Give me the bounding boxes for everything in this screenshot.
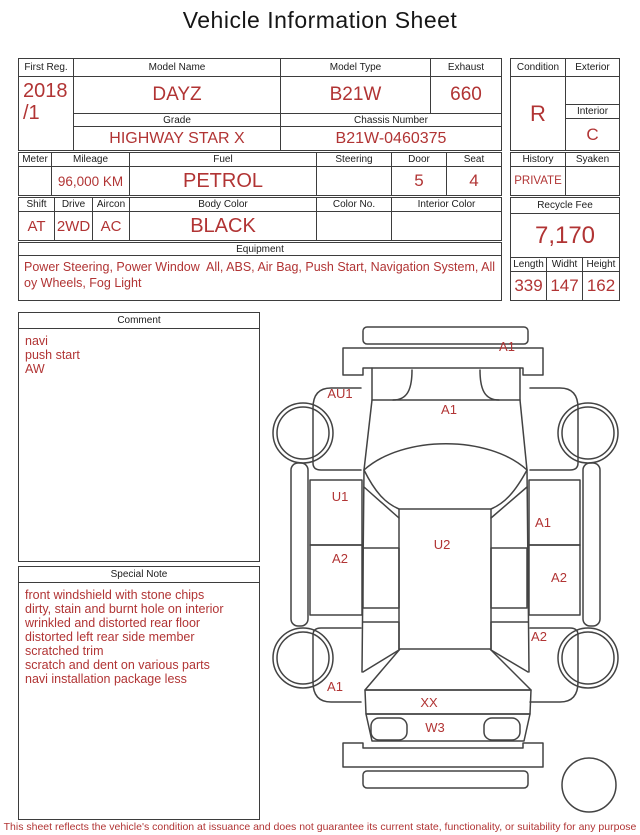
recycle-fee-value: 7,170 bbox=[510, 213, 620, 258]
exterior-label: Exterior bbox=[565, 58, 620, 77]
damage-code-label: XX bbox=[420, 695, 438, 710]
front-door-right bbox=[529, 480, 580, 545]
color-no-value bbox=[316, 211, 392, 241]
condition-label: Condition bbox=[510, 58, 566, 77]
damage-code-label: A1 bbox=[441, 402, 457, 417]
special-note-line: distorted left rear side member bbox=[25, 631, 247, 644]
meter-value bbox=[18, 166, 52, 196]
vehicle-information-sheet: Vehicle Information Sheet First Reg. Mod… bbox=[0, 0, 640, 835]
disclaimer-text: This sheet reflects the vehicle's condit… bbox=[0, 821, 640, 833]
widht-value: 147 bbox=[546, 271, 583, 301]
aircon-value: AC bbox=[92, 211, 130, 241]
cowl-arc-left bbox=[393, 370, 412, 400]
sill-right bbox=[583, 463, 600, 626]
special-note-lines: front windshield with stone chips dirty,… bbox=[25, 589, 247, 687]
fuel-label: Fuel bbox=[129, 152, 317, 167]
special-note-line: wrinkled and distorted rear floor bbox=[25, 617, 247, 630]
tail-light-right bbox=[484, 718, 520, 740]
steering-label: Steering bbox=[316, 152, 392, 167]
damage-code-label: A2 bbox=[531, 629, 547, 644]
rear-wheel-left bbox=[273, 628, 333, 688]
first-reg-value: 2018 /1 bbox=[18, 76, 74, 151]
damage-code-label: W3 bbox=[425, 720, 445, 735]
special-note-line: front windshield with stone chips bbox=[25, 589, 247, 602]
mileage-label: Mileage bbox=[51, 152, 130, 167]
grade-value: HIGHWAY STAR X bbox=[73, 126, 281, 151]
model-type-value: B21W bbox=[280, 76, 431, 114]
special-note-line: dirty, stain and burnt hole on interior bbox=[25, 603, 247, 616]
sill-left bbox=[291, 463, 308, 626]
first-reg-label: First Reg. bbox=[18, 58, 74, 77]
height-label: Height bbox=[582, 257, 620, 272]
spare-wheel bbox=[562, 758, 616, 812]
damage-code-label: A1 bbox=[499, 339, 515, 354]
syaken-value bbox=[565, 166, 620, 196]
interior-value: C bbox=[565, 118, 620, 151]
page-title: Vehicle Information Sheet bbox=[0, 7, 640, 34]
hood-outline bbox=[372, 368, 520, 400]
front-wheel-right-inner bbox=[562, 407, 614, 459]
seat-value: 4 bbox=[446, 166, 502, 196]
shift-label: Shift bbox=[18, 197, 55, 212]
seat-label: Seat bbox=[446, 152, 502, 167]
door-value: 5 bbox=[391, 166, 447, 196]
interior-label: Interior bbox=[565, 104, 620, 119]
comment-label: Comment bbox=[18, 312, 260, 329]
front-wheel-left bbox=[273, 403, 333, 463]
damage-code-label: AU1 bbox=[327, 386, 352, 401]
damage-code-label: A1 bbox=[327, 679, 343, 694]
shift-value: AT bbox=[18, 211, 55, 241]
special-note-line: scratch and dent on various parts bbox=[25, 659, 247, 672]
equipment-value: Power Steering, Power Window All, ABS, A… bbox=[18, 255, 502, 301]
rear-bumper-bottom-strip bbox=[363, 771, 528, 788]
length-value: 339 bbox=[510, 271, 547, 301]
rear-wheel-right bbox=[558, 628, 618, 688]
drive-value: 2WD bbox=[54, 211, 93, 241]
comment-lines: navi push start AW bbox=[25, 335, 249, 377]
recycle-fee-label: Recycle Fee bbox=[510, 197, 620, 214]
rear-panel bbox=[365, 690, 531, 714]
chassis-value: B21W-0460375 bbox=[280, 126, 502, 151]
comment-line: push start bbox=[25, 349, 249, 362]
damage-code-label: A1 bbox=[535, 515, 551, 530]
aircon-label: Aircon bbox=[92, 197, 130, 212]
body-color-label: Body Color bbox=[129, 197, 317, 212]
front-wheel-right bbox=[558, 403, 618, 463]
door-aperture-left-rear bbox=[363, 622, 399, 672]
door-aperture-right-rear bbox=[491, 622, 528, 672]
condition-value: R bbox=[510, 76, 566, 151]
height-value: 162 bbox=[582, 271, 620, 301]
tail-light-left bbox=[371, 718, 407, 740]
comment-line: navi bbox=[25, 335, 249, 348]
syaken-label: Syaken bbox=[565, 152, 620, 167]
special-note-label: Special Note bbox=[18, 566, 260, 583]
color-no-label: Color No. bbox=[316, 197, 392, 212]
interior-color-value bbox=[391, 211, 502, 241]
a-pillar-right bbox=[520, 400, 527, 470]
door-aperture-left-mid bbox=[363, 548, 399, 608]
a-pillar-left bbox=[364, 400, 372, 470]
exhaust-value: 660 bbox=[430, 76, 502, 114]
roof-outline bbox=[364, 444, 527, 509]
length-label: Length bbox=[510, 257, 547, 272]
car-damage-diagram: A1 AU1 A1 U1 A1 A2 U2 A2 A2 A1 XX W3 bbox=[265, 315, 640, 815]
rear-bumper bbox=[343, 743, 543, 767]
rear-wheel-left-inner bbox=[277, 632, 329, 684]
body-color-value: BLACK bbox=[129, 211, 317, 241]
rear-wheel-right-inner bbox=[562, 632, 614, 684]
mileage-value: 96,000 KM bbox=[51, 166, 130, 196]
door-aperture-right-front bbox=[491, 487, 527, 518]
history-value: PRIVATE bbox=[510, 166, 566, 196]
drive-label: Drive bbox=[54, 197, 93, 212]
door-aperture-left-front bbox=[364, 487, 399, 518]
special-note-line: scratched trim bbox=[25, 645, 247, 658]
steering-value bbox=[316, 166, 392, 196]
damage-code-label: U2 bbox=[434, 537, 451, 552]
grade-label: Grade bbox=[73, 113, 281, 127]
door-aperture-right-mid bbox=[491, 548, 527, 608]
model-name-label: Model Name bbox=[73, 58, 281, 77]
damage-code-label: U1 bbox=[332, 489, 349, 504]
front-wheel-left-inner bbox=[277, 407, 329, 459]
widht-label: Widht bbox=[546, 257, 583, 272]
door-label: Door bbox=[391, 152, 447, 167]
cowl-arc-right bbox=[480, 370, 499, 400]
fuel-value: PETROL bbox=[129, 166, 317, 196]
damage-code-label: A2 bbox=[332, 551, 348, 566]
comment-line: AW bbox=[25, 363, 249, 376]
special-note-line: navi installation package less bbox=[25, 673, 247, 686]
history-label: History bbox=[510, 152, 566, 167]
model-type-label: Model Type bbox=[280, 58, 431, 77]
model-name-value: DAYZ bbox=[73, 76, 281, 114]
exterior-value bbox=[565, 76, 620, 105]
damage-code-label: A2 bbox=[551, 570, 567, 585]
meter-label: Meter bbox=[18, 152, 52, 167]
chassis-label: Chassis Number bbox=[280, 113, 502, 127]
equipment-label: Equipment bbox=[18, 242, 502, 256]
exhaust-label: Exhaust bbox=[430, 58, 502, 77]
interior-color-label: Interior Color bbox=[391, 197, 502, 212]
